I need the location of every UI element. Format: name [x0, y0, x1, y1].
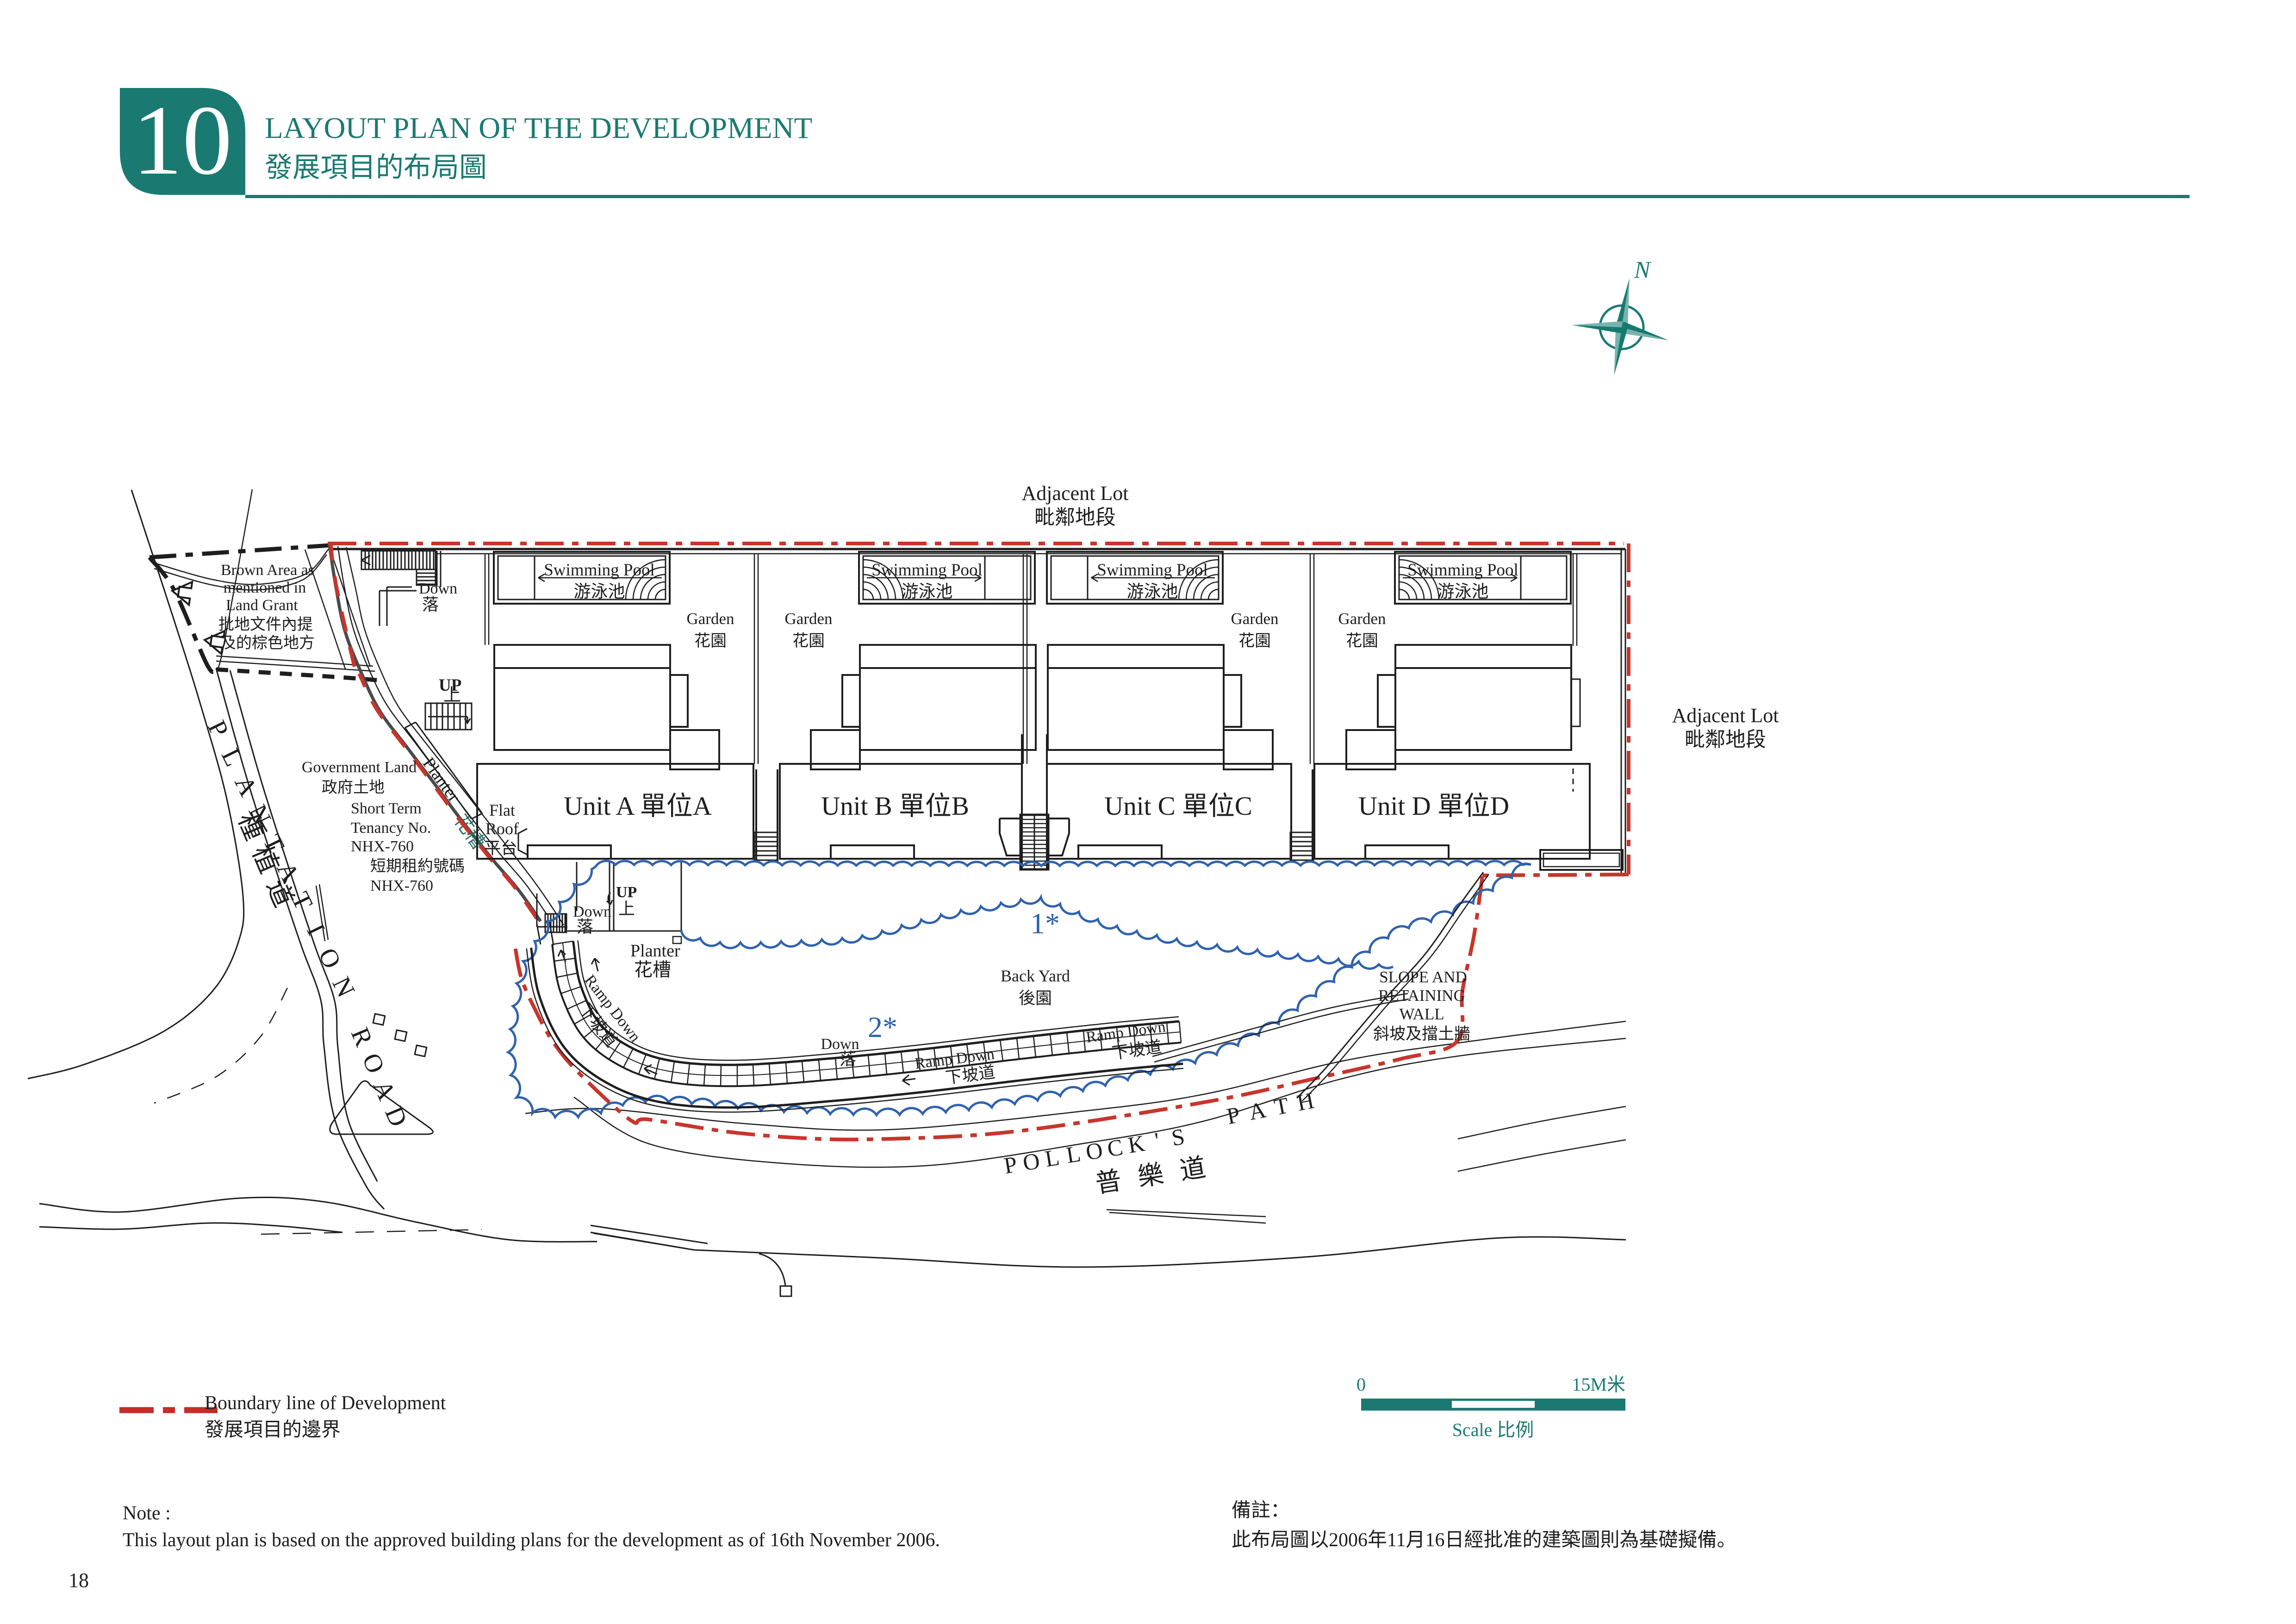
svg-text:Back Yard: Back Yard: [1001, 967, 1070, 985]
svg-text:Garden: Garden: [784, 610, 832, 628]
svg-text:Down: Down: [419, 580, 457, 597]
svg-text:Note :: Note :: [123, 1503, 171, 1524]
svg-text:政府土地: 政府土地: [322, 779, 385, 796]
svg-text:毗鄰地段: 毗鄰地段: [1034, 506, 1116, 529]
svg-text:NHX-760: NHX-760: [351, 838, 414, 855]
svg-text:N: N: [1634, 257, 1652, 283]
svg-text:花園: 花園: [1238, 632, 1271, 650]
svg-text:及的棕色地方: 及的棕色地方: [220, 634, 315, 652]
svg-text:WALL: WALL: [1399, 1005, 1444, 1023]
svg-text:落: 落: [577, 918, 593, 936]
svg-text:Garden: Garden: [686, 610, 734, 628]
svg-text:2*: 2*: [868, 1011, 897, 1043]
svg-text:Brown Area as: Brown Area as: [221, 562, 314, 579]
svg-text:LAYOUT PLAN OF THE DEVELOPMENT: LAYOUT PLAN OF THE DEVELOPMENT: [265, 112, 812, 145]
svg-text:上: 上: [618, 899, 635, 918]
svg-text:mentioned in: mentioned in: [224, 579, 306, 596]
svg-text:發展項目的布局圖: 發展項目的布局圖: [265, 152, 487, 183]
svg-text:斜坡及擋土牆: 斜坡及擋土牆: [1373, 1025, 1470, 1043]
svg-text:普: 普: [1094, 1166, 1124, 1199]
svg-text:游泳池: 游泳池: [574, 582, 625, 601]
svg-text:上: 上: [443, 686, 461, 705]
svg-text:This layout plan is based on t: This layout plan is based on the approve…: [123, 1530, 940, 1551]
svg-text:Government Land: Government Land: [302, 759, 417, 776]
svg-text:Boundary line of Development: Boundary line of Development: [205, 1393, 446, 1414]
svg-text:Swimming Pool: Swimming Pool: [1407, 561, 1518, 580]
svg-text:18: 18: [68, 1569, 89, 1592]
svg-text:SLOPE AND: SLOPE AND: [1379, 968, 1467, 986]
svg-text:此布局圖以2006年11月16日經批准的建築圖則為基礎擬備。: 此布局圖以2006年11月16日經批准的建築圖則為基礎擬備。: [1232, 1529, 1736, 1551]
svg-text:平台: 平台: [484, 839, 517, 857]
svg-text:Swimming Pool: Swimming Pool: [1097, 561, 1208, 580]
svg-text:Tenancy No.: Tenancy No.: [351, 819, 431, 837]
svg-text:UP: UP: [616, 884, 637, 901]
svg-text:Garden: Garden: [1231, 610, 1278, 628]
svg-text:Scale 比例: Scale 比例: [1452, 1419, 1534, 1440]
svg-text:落: 落: [422, 595, 439, 614]
svg-text:Planter: Planter: [630, 941, 680, 961]
svg-text:毗鄰地段: 毗鄰地段: [1685, 728, 1766, 751]
svg-text:花槽: 花槽: [634, 959, 671, 980]
svg-text:短期租約號碼: 短期租約號碼: [370, 857, 465, 875]
svg-text:Roof: Roof: [485, 819, 519, 838]
svg-text:Swimming Pool: Swimming Pool: [544, 561, 655, 580]
svg-text:花園: 花園: [694, 632, 727, 650]
svg-text:落: 落: [840, 1050, 856, 1068]
svg-text:Flat: Flat: [489, 801, 515, 819]
svg-text:後園: 後園: [1019, 989, 1052, 1007]
svg-text:10: 10: [133, 85, 232, 195]
svg-text:Adjacent Lot: Adjacent Lot: [1022, 482, 1129, 505]
svg-text:Unit A 單位A: Unit A 單位A: [564, 792, 712, 821]
svg-text:Swimming Pool: Swimming Pool: [871, 561, 983, 580]
svg-text:樂: 樂: [1136, 1160, 1166, 1192]
svg-text:1*: 1*: [1030, 907, 1060, 940]
svg-text:批地文件內提: 批地文件內提: [218, 616, 313, 633]
svg-text:15M米: 15M米: [1572, 1374, 1625, 1395]
svg-text:Unit C 單位C: Unit C 單位C: [1104, 792, 1252, 821]
svg-text:Unit D 單位D: Unit D 單位D: [1358, 792, 1509, 821]
svg-text:NHX-760: NHX-760: [370, 877, 433, 894]
svg-text:Adjacent Lot: Adjacent Lot: [1672, 704, 1779, 727]
svg-text:Garden: Garden: [1338, 610, 1386, 628]
svg-text:備註：: 備註：: [1232, 1500, 1290, 1521]
svg-text:Short Term: Short Term: [351, 800, 422, 817]
svg-text:花園: 花園: [1346, 632, 1378, 650]
svg-text:0: 0: [1356, 1374, 1366, 1395]
svg-text:發展項目的邊界: 發展項目的邊界: [205, 1419, 341, 1441]
svg-text:游泳池: 游泳池: [1127, 582, 1178, 601]
svg-text:Unit B 單位B: Unit B 單位B: [821, 792, 969, 821]
svg-text:游泳池: 游泳池: [902, 582, 953, 601]
svg-text:道: 道: [1178, 1153, 1208, 1186]
svg-text:Land Grant: Land Grant: [226, 597, 298, 614]
svg-text:花園: 花園: [792, 632, 825, 650]
svg-text:游泳池: 游泳池: [1437, 582, 1489, 601]
